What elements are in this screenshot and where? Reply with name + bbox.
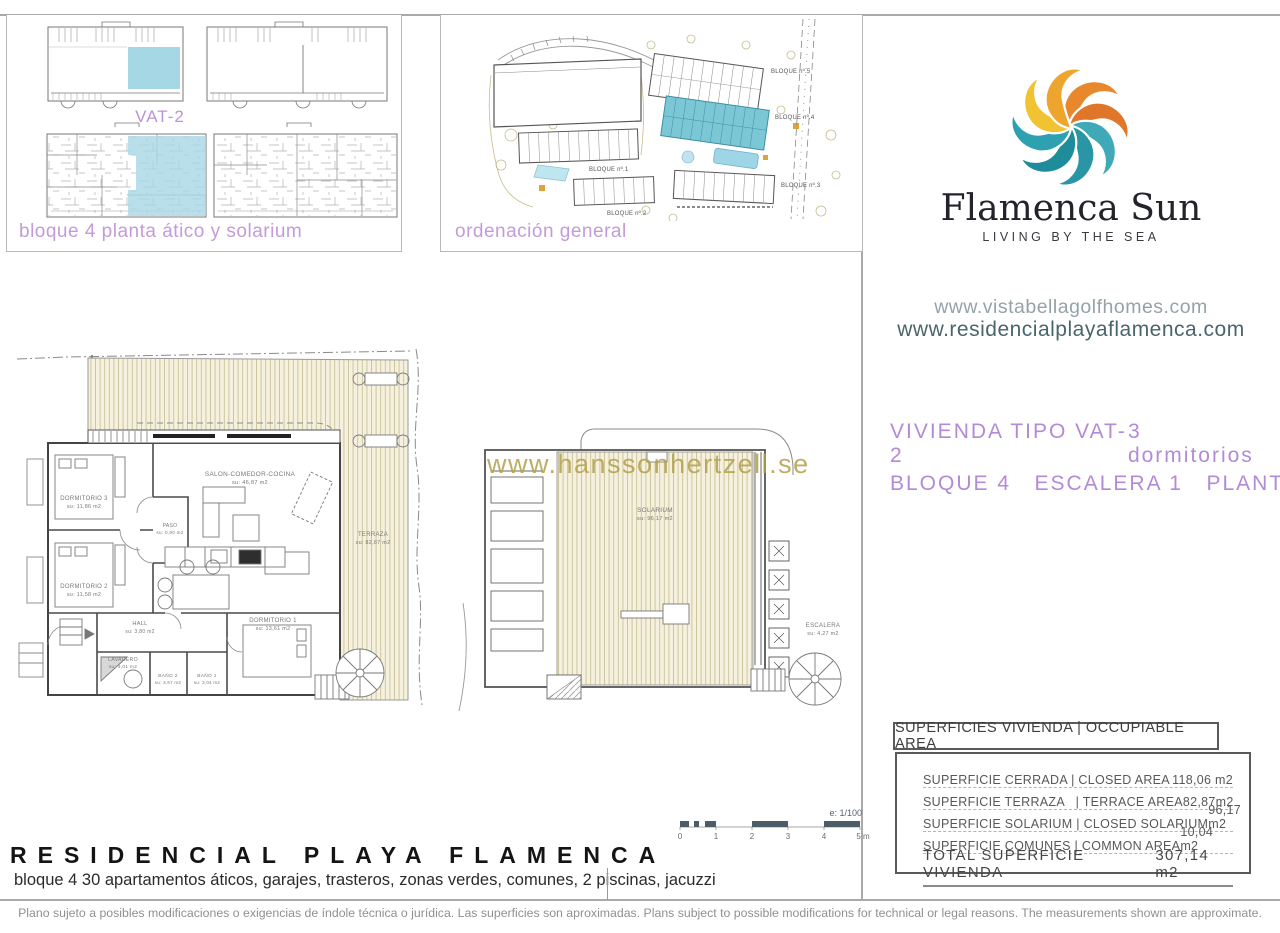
scale-tick-1: 1 <box>714 832 719 841</box>
row-label: SUPERFICIE CERRADA | CLOSED AREA <box>923 773 1170 787</box>
row-label: SUPERFICIE TERRAZA | TERRACE AREA <box>923 795 1183 809</box>
block-label-5: BLOQUE nº.5 <box>771 68 811 75</box>
room-area-bano2: su: 3,67 m2 <box>155 680 181 685</box>
solarium-deck <box>557 452 753 685</box>
room-label-bano1: BAÑO 1 <box>197 672 216 679</box>
subtitle-divider <box>607 868 608 900</box>
watermark: www.hanssonhertzell.se <box>487 449 810 480</box>
scale-bar: e: 1/100 0 1 2 3 4 5 m <box>670 805 880 845</box>
vat2-highlight-plan <box>128 136 206 216</box>
scale-tick-4: 4 <box>822 832 827 841</box>
room-label-dorm1: DORMITORIO 1 <box>249 618 297 624</box>
scale-tick-0: 0 <box>678 832 683 841</box>
project-title: RESIDENCIAL PLAYA FLAMENCA <box>10 842 666 869</box>
unit-thumbnails-panel: VAT-2 bloque 4 planta ático y solarium <box>6 15 402 252</box>
table-row: SUPERFICIE CERRADA | CLOSED AREA 118,06 … <box>923 766 1233 788</box>
block-label-1: BLOQUE nº.1 <box>589 166 629 173</box>
room-area-terraza: su: 82,87 m2 <box>356 540 391 546</box>
brochure-sheet: VAT-2 bloque 4 planta ático y solarium <box>0 0 1280 933</box>
bottom-rule <box>0 899 1280 901</box>
row-value: 118,06 m2 <box>1172 773 1233 787</box>
room-area-hall: su: 3,80 m2 <box>125 629 154 635</box>
room-label-terraza: TERRAZA <box>358 532 388 538</box>
areas-table-header: SUPERFICIES VIVIENDA | OCCUPIABLE AREA <box>893 722 1219 750</box>
row-label: SUPERFICIE SOLARIUM | CLOSED SOLARIUM <box>923 817 1208 831</box>
room-label-solarium: SOLARIUM <box>637 507 673 514</box>
room-area-solarium: su: 96,17 m2 <box>637 516 673 522</box>
unit-thumbnails-drawing: VAT-2 <box>7 15 401 221</box>
thumbnails-caption: bloque 4 planta ático y solarium <box>19 221 302 243</box>
room-area-paso: su: 0,90 m2 <box>156 530 183 535</box>
url-residencialplayaflamenca[interactable]: www.residencialplayaflamenca.com <box>862 318 1280 342</box>
room-label-dorm2: DORMITORIO 2 <box>60 584 108 590</box>
block-label-2: BLOQUE nº.2 <box>607 210 647 217</box>
room-label-salon: SALON-COMEDOR-COCINA <box>205 471 296 478</box>
room-area-dorm3: su: 11,86 m2 <box>67 504 101 510</box>
room-label-paso: PASO <box>163 523 178 529</box>
room-area-salon: su: 46,87 m2 <box>232 480 268 486</box>
siteplan-drawing: BLOQUE nº.5 BLOQUE nº.4 BLOQUE nº.3 BLOQ… <box>441 15 862 221</box>
total-label: TOTAL SUPERFICIE VIVIENDA <box>923 847 1155 881</box>
block-label-3: BLOQUE nº.3 <box>781 182 821 189</box>
apartment-floorplan: SALON-COMEDOR-COCINA su: 46,87 m2 DORMIT… <box>15 347 460 717</box>
table-row: SUPERFICIE TERRAZA | TERRACE AREA 82,87m… <box>923 788 1233 810</box>
total-value: 307,14 m2 <box>1155 847 1233 881</box>
unit-location: BLOQUE 4 ESCALERA 1 PLANTA ÁTICO <box>890 472 1268 496</box>
disclaimer: Plano sujeto a posibles modificaciones o… <box>0 906 1280 920</box>
scale-label: e: 1/100 <box>829 808 862 818</box>
url-vistabellagolfhomes[interactable]: www.vistabellagolfhomes.com <box>862 296 1280 319</box>
pool-main <box>713 148 759 169</box>
jacuzzi <box>682 151 694 163</box>
vat2-highlight-upper <box>128 47 180 89</box>
room-area-escalera: su: 4,27 m2 <box>807 631 838 637</box>
table-total-row: TOTAL SUPERFICIE VIVIENDA 307,14 m2 <box>923 854 1233 887</box>
brand-tagline: LIVING BY THE SEA <box>862 230 1280 244</box>
vat2-label: VAT-2 <box>135 107 185 126</box>
siteplan-panel: BLOQUE nº.5 BLOQUE nº.4 BLOQUE nº.3 BLOQ… <box>440 15 863 252</box>
room-label-dorm3: DORMITORIO 3 <box>60 496 108 502</box>
scale-tick-5: 5 m <box>856 832 870 841</box>
pool-secondary <box>534 165 569 181</box>
brand-name: Flamenca Sun <box>862 188 1280 229</box>
areas-table: SUPERFICIE CERRADA | CLOSED AREA 118,06 … <box>895 752 1251 874</box>
unit-bedrooms: 3 dormitorios <box>1128 420 1268 468</box>
room-label-hall: HALL <box>132 621 147 627</box>
room-label-lavadero: LAVADERO <box>108 657 138 663</box>
room-label-escalera: ESCALERA <box>806 623 840 629</box>
unit-type: VIVIENDA TIPO VAT-2 <box>890 420 1128 468</box>
sun-spiral-logo-icon <box>1008 68 1132 186</box>
siteplan-caption: ordenación general <box>455 221 627 243</box>
unit-heading: VIVIENDA TIPO VAT-2 3 dormitorios BLOQUE… <box>890 420 1268 496</box>
block-label-4: BLOQUE nº.4 <box>775 114 815 121</box>
room-label-bano2: BAÑO 2 <box>158 672 177 679</box>
scale-tick-2: 2 <box>750 832 755 841</box>
scale-tick-3: 3 <box>786 832 791 841</box>
room-area-bano1: su: 3,04 m2 <box>194 680 220 685</box>
room-area-dorm1: su: 13,61 m2 <box>256 626 291 632</box>
room-area-dorm2: su: 11,58 m2 <box>67 592 101 598</box>
project-subtitle: bloque 4 30 apartamentos áticos, garajes… <box>14 871 716 890</box>
room-area-lavadero: su: 3,01 m2 <box>109 664 137 670</box>
